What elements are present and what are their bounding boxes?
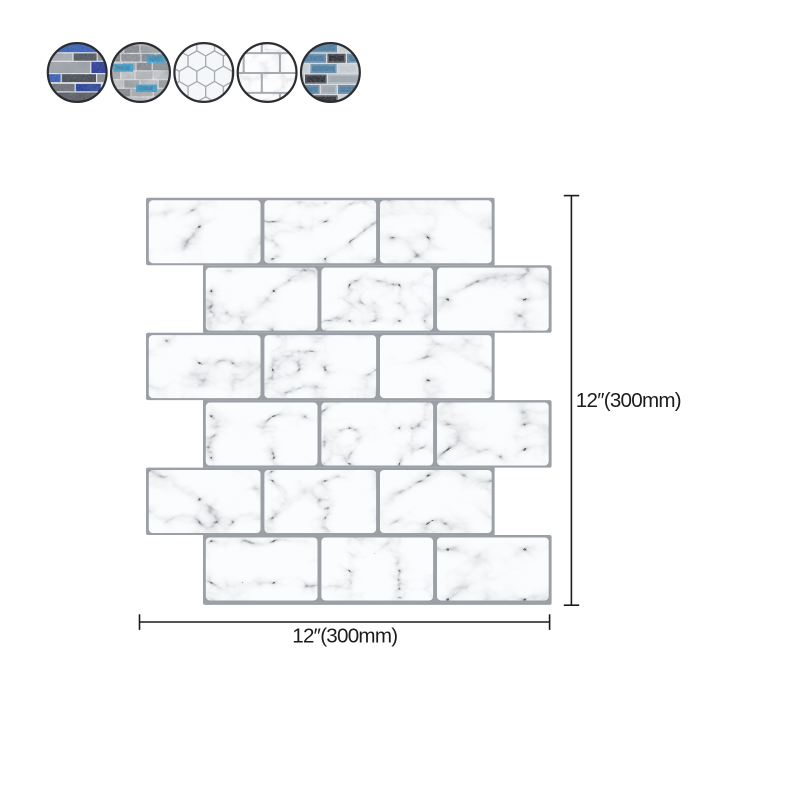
svg-text:12″(300mm): 12″(300mm): [292, 624, 397, 647]
svg-text:12″(300mm): 12″(300mm): [576, 389, 681, 412]
